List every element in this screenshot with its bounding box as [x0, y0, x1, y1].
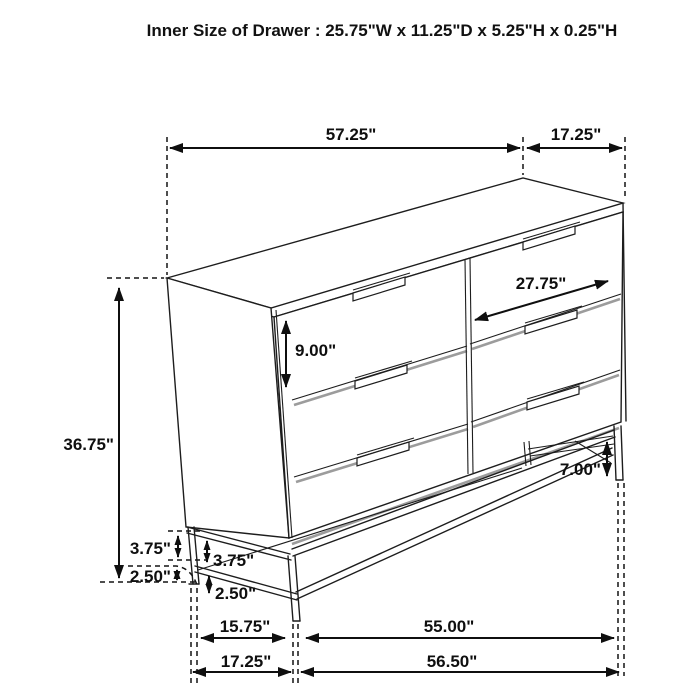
dim-base-lower-front: 2.50": [209, 576, 256, 603]
dim-label-leg-span-front: 55.00": [424, 617, 475, 636]
diagram-title: Inner Size of Drawer : 25.75"W x 11.25"D…: [147, 21, 618, 40]
dim-label-base-lower-front: 2.50": [215, 584, 256, 603]
dresser-left-panel: [167, 278, 289, 538]
leg-front-left: [288, 556, 300, 621]
dim-top-depth: 17.25": [527, 125, 622, 148]
dim-outer-span-side: 17.25": [193, 652, 291, 672]
leg-front-right: [614, 426, 623, 480]
dim-overall-height: 36.75": [63, 288, 119, 578]
dim-label-overall-height: 36.75": [63, 435, 114, 454]
dim-base-upper-front: 3.75": [207, 541, 254, 570]
dim-top-width: 57.25": [170, 125, 520, 148]
dim-base-lower-back: 2.50": [130, 567, 177, 586]
dim-base-upper-back: 3.75": [130, 536, 178, 558]
dim-leg-span-front: 55.00": [306, 617, 614, 638]
dim-label-outer-span-front: 56.50": [427, 652, 478, 671]
dim-label-leg-height: 7.00": [560, 460, 601, 479]
dim-label-drawer-height: 9.00": [295, 341, 336, 360]
dimension-diagram: Inner Size of Drawer : 25.75"W x 11.25"D…: [0, 0, 700, 700]
dim-label-top-width: 57.25": [326, 125, 377, 144]
dim-label-top-depth: 17.25": [551, 125, 602, 144]
dim-label-drawer-width: 27.75": [516, 274, 567, 293]
dim-label-leg-span-side: 15.75": [220, 617, 271, 636]
diagram-page: Inner Size of Drawer : 25.75"W x 11.25"D…: [0, 0, 700, 700]
dim-leg-span-side: 15.75": [201, 617, 285, 638]
right-outer-edge: [623, 203, 626, 421]
dim-label-outer-span-side: 17.25": [221, 652, 272, 671]
dim-label-base-upper-front: 3.75": [213, 551, 254, 570]
dim-label-base-upper-back: 3.75": [130, 539, 171, 558]
dim-outer-span-front: 56.50": [301, 652, 619, 672]
dim-label-base-lower-back: 2.50": [130, 567, 171, 586]
